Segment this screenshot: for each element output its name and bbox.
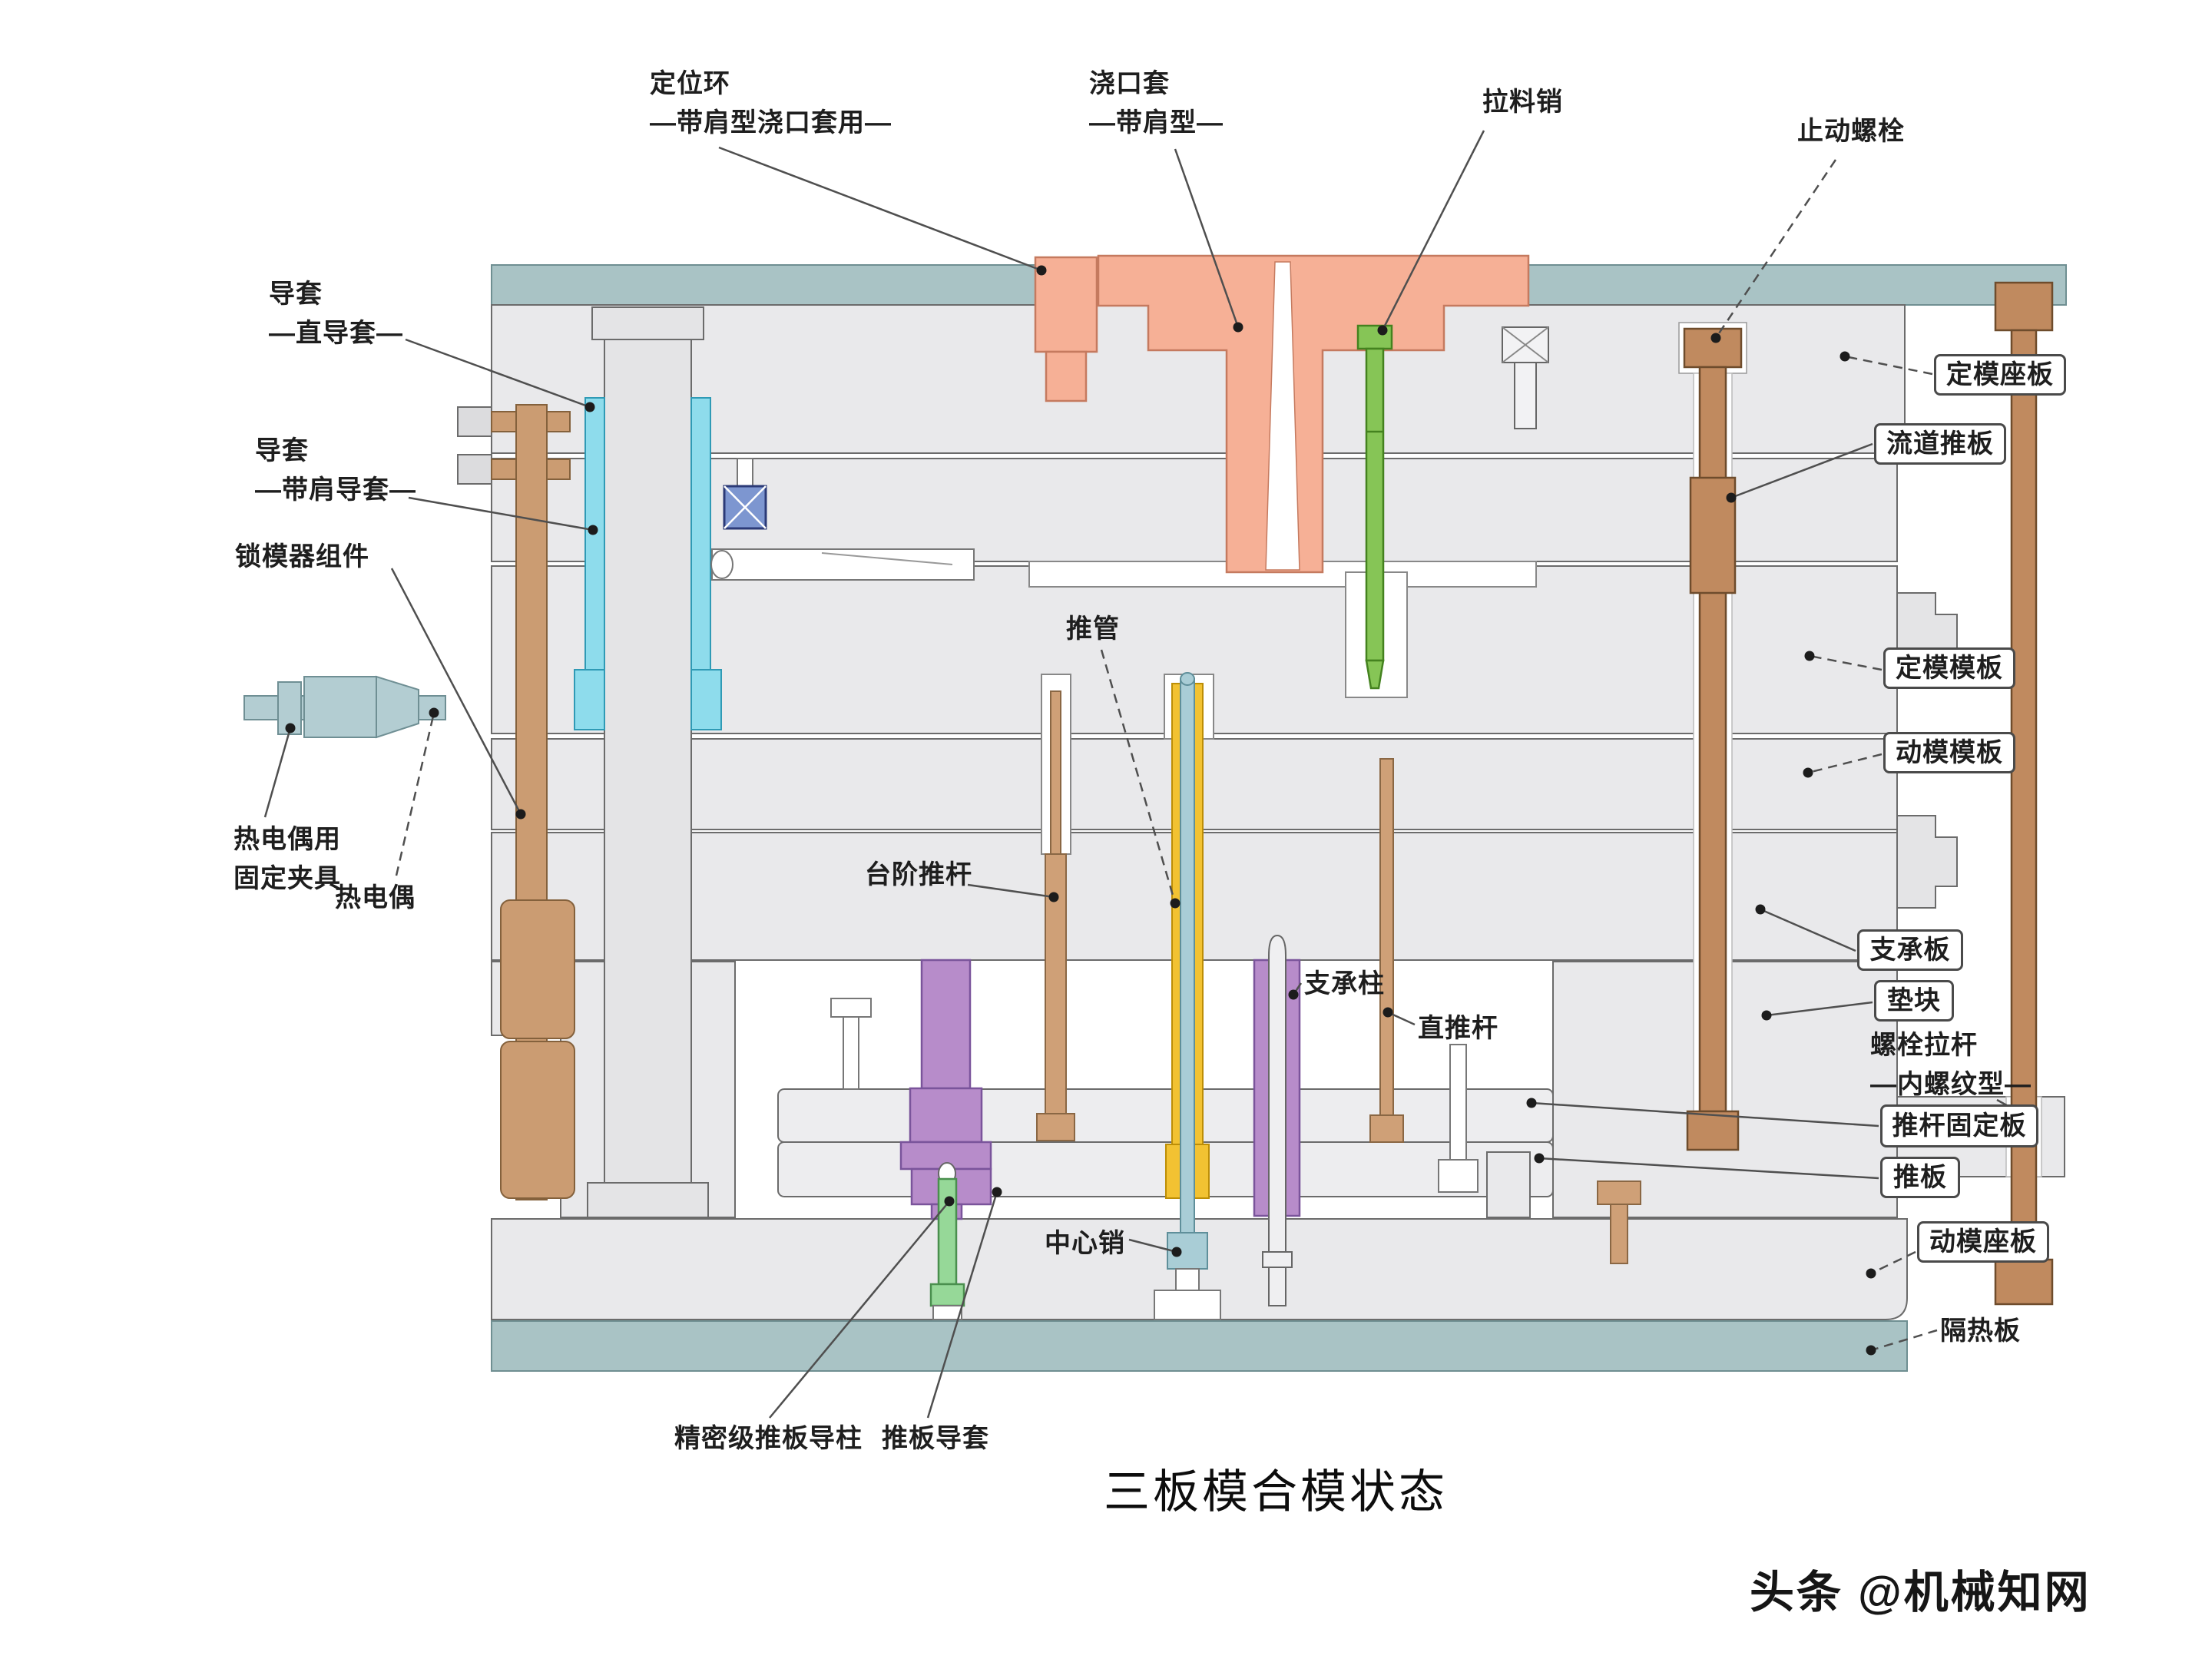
label-guide-bushing-shoulder: 导套 —带肩导套— bbox=[255, 432, 416, 510]
side-lock-bottom-shape bbox=[1897, 816, 1957, 908]
label-guide-bushing-straight: 导套 —直导套— bbox=[269, 275, 403, 353]
label-stop-bolt: 止动螺栓 bbox=[1797, 112, 1905, 151]
label-thermocouple-clamp: 热电偶用 固定夹具 bbox=[233, 820, 341, 899]
label-insulation-plate: 隔热板 bbox=[1940, 1312, 2021, 1351]
label-straight-ejector-pin: 直推杆 bbox=[1418, 1009, 1498, 1048]
guide-pillar-head-shape bbox=[592, 307, 704, 339]
label-ejector-sleeve: 推管 bbox=[1066, 610, 1120, 649]
guide-pillar-shape bbox=[604, 339, 691, 1198]
label-runner-stripper-plate: 流道推板 bbox=[1874, 423, 2006, 465]
label-sprue-bushing: 浇口套 —带肩型— bbox=[1089, 65, 1224, 143]
label-precision-ejector-guide-pillar: 精密级推板导柱 bbox=[674, 1419, 863, 1459]
return-stop-bolt-shape bbox=[831, 998, 871, 1089]
diagram-canvas: 定位环 —带肩型浇口套用— 浇口套 —带肩型— 拉料销 止动螺栓 导套 —直导套… bbox=[0, 0, 2212, 1659]
label-thermocouple: 热电偶 bbox=[335, 879, 416, 918]
label-stepped-ejector-pin: 台阶推杆 bbox=[865, 856, 972, 895]
label-center-pin: 中心销 bbox=[1045, 1224, 1125, 1263]
label-locating-ring: 定位环 —带肩型浇口套用— bbox=[650, 65, 892, 143]
ejector-retainer-plate-shape bbox=[778, 1089, 1553, 1142]
label-support-plate: 支承板 bbox=[1857, 929, 1963, 971]
latch-lever-shape bbox=[711, 549, 974, 580]
label-moving-clamp-plate: 动模座板 bbox=[1917, 1221, 2049, 1263]
insulation-plate-shape bbox=[492, 1321, 1907, 1371]
guide-pillar-bolt-shape bbox=[939, 1179, 956, 1284]
guide-bushing-left-flange-shape bbox=[575, 670, 604, 730]
label-fixed-mold-plate: 定模模板 bbox=[1883, 647, 2015, 689]
label-support-pillar: 支承柱 bbox=[1304, 965, 1385, 1004]
watermark: 头条 @机械知网 bbox=[1750, 1556, 2091, 1621]
label-spacer-block: 垫块 bbox=[1874, 980, 1954, 1022]
center-pin-shape bbox=[1181, 679, 1194, 1233]
thermocouple-shape bbox=[244, 677, 445, 737]
guide-pillar-foot-shape bbox=[588, 1183, 708, 1217]
label-ejector-plate-guide-bushing: 推板导套 bbox=[882, 1419, 989, 1459]
label-moving-mold-plate: 动模模板 bbox=[1883, 732, 2015, 773]
diagram-title: 三板模合模状态 bbox=[1104, 1455, 1448, 1522]
label-bolt-tie-rod: 螺栓拉杆 —内螺纹型— bbox=[1870, 1026, 2032, 1104]
label-mold-lock-assembly: 锁模器组件 bbox=[235, 538, 369, 577]
label-puller-pin: 拉料销 bbox=[1482, 83, 1563, 122]
guide-bushing-right-flange-shape bbox=[691, 670, 721, 730]
label-ejector-plate: 推板 bbox=[1880, 1157, 1960, 1198]
label-fixed-clamp-plate: 定模座板 bbox=[1934, 354, 2066, 396]
label-ejector-retainer-plate: 推杆固定板 bbox=[1880, 1104, 2038, 1147]
support-pillar-shape bbox=[1269, 935, 1286, 1252]
ejector-guide-bushing-shape bbox=[910, 1088, 982, 1142]
